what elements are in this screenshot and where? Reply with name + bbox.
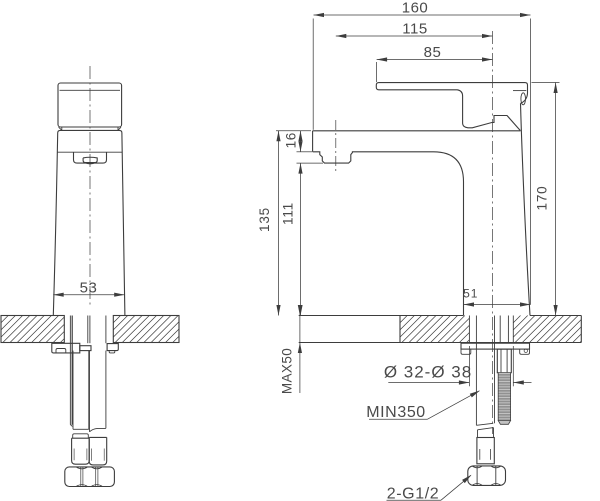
svg-text:MAX50: MAX50 <box>280 348 295 394</box>
svg-text:2-G1/2: 2-G1/2 <box>387 485 440 501</box>
svg-text:51: 51 <box>463 287 478 301</box>
svg-text:MIN350: MIN350 <box>366 404 426 421</box>
svg-text:115: 115 <box>402 21 427 38</box>
svg-text:160: 160 <box>402 0 429 16</box>
svg-text:135: 135 <box>257 207 272 232</box>
svg-text:85: 85 <box>424 44 442 61</box>
svg-text:53: 53 <box>80 279 98 296</box>
svg-text:16: 16 <box>283 132 298 148</box>
svg-text:Ø 32-Ø 38: Ø 32-Ø 38 <box>384 363 472 382</box>
svg-text:170: 170 <box>535 186 550 211</box>
svg-text:111: 111 <box>280 202 295 225</box>
